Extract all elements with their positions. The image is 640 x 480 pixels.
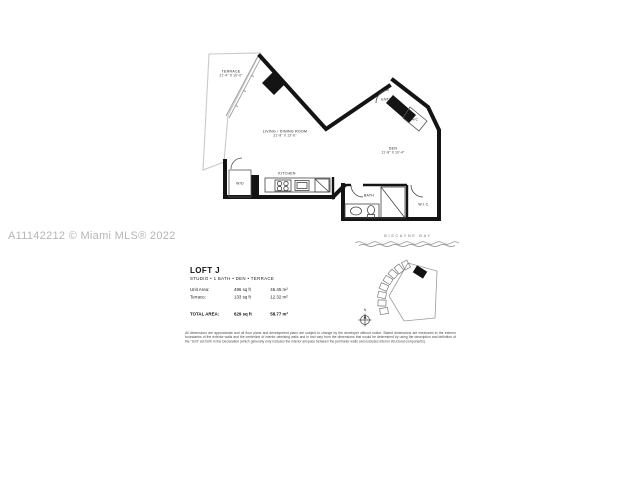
- bath-fixtures: [345, 185, 423, 218]
- floor-plan-page: A11142212 © Miami MLS® 2022: [0, 0, 640, 480]
- total-area-sqm: 58.77 m²: [270, 311, 309, 319]
- unit-area-row: Unit Area: 496 sq ft 46.45 m²: [190, 286, 355, 294]
- unit-area-sqft: 496 sq ft: [234, 286, 270, 294]
- room-label-ac: A/C: [412, 118, 419, 122]
- room-label-entry: ENTRY: [381, 98, 394, 102]
- biscayne-bay-label: BISCAYNE BAY: [384, 234, 431, 238]
- disclaimer: All dimensions are approximate and all f…: [185, 331, 457, 361]
- room-label-bath: BATH: [364, 194, 374, 198]
- building-floorplate: [389, 263, 437, 321]
- compass-icon: [359, 314, 372, 327]
- terrace-area-label: Terrace:: [190, 294, 234, 302]
- terrace-area-sqm: 12.32 m²: [270, 294, 309, 302]
- disclaimer-text: All dimensions are approximate and all f…: [185, 331, 456, 344]
- wave-lines: [355, 242, 459, 247]
- terrace-area-sqft: 133 sq ft: [234, 294, 270, 302]
- unit-name: LOFT J: [190, 266, 360, 275]
- room-label-wic: W.I.C.: [418, 203, 429, 207]
- compass-north-label: N: [364, 308, 367, 312]
- floor-plan-drawing: TERRACE 21'-4" X 10'-0" LIVING / DINING …: [183, 8, 458, 233]
- total-area-sqft: 629 sq ft: [234, 311, 270, 319]
- room-label-living: LIVING / DINING ROOM 21'-8" X 13'-6": [263, 130, 308, 138]
- kitchen-fixtures: [265, 178, 330, 192]
- room-label-terrace: TERRACE 21'-4" X 10'-0": [219, 70, 242, 78]
- room-label-wd: W/D: [236, 182, 244, 186]
- key-plan-svg: [353, 230, 463, 340]
- wd-closet: [229, 158, 251, 197]
- terrace-area-row: Terrace: 133 sq ft 12.32 m²: [190, 294, 355, 302]
- room-label-den: DEN 11'-8" X 10'-4": [382, 147, 405, 155]
- total-area-label: TOTAL AREA:: [190, 311, 234, 319]
- key-plan: BISCAYNE BAY N: [353, 230, 463, 340]
- unit-area-label: Unit Area:: [190, 286, 234, 294]
- unit-area-sqm: 46.45 m²: [270, 286, 309, 294]
- total-area-row: TOTAL AREA: 629 sq ft 58.77 m²: [190, 311, 355, 319]
- room-label-kitchen: KITCHEN: [278, 172, 295, 176]
- unit-subtitle: STUDIO • 1 BATH • DEN • TERRACE: [190, 276, 355, 281]
- mls-watermark: A11142212 © Miami MLS® 2022: [8, 230, 176, 242]
